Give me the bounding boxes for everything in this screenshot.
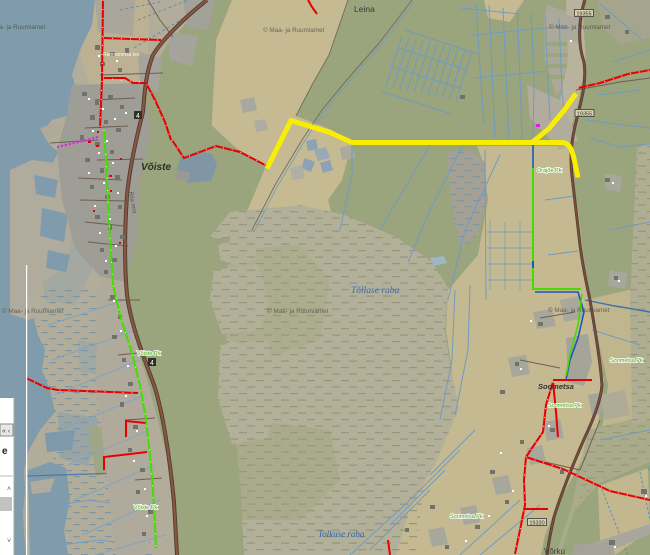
svg-text:19330: 19330 <box>529 521 544 527</box>
svg-text:© Maa- ja Ruumiamet: © Maa- ja Ruumiamet <box>2 307 64 315</box>
svg-text:Orajõe Pk: Orajõe Pk <box>537 168 562 174</box>
svg-text:Võiste Pk: Võiste Pk <box>137 351 160 357</box>
svg-text:© Maa- ja Ruumiamet: © Maa- ja Ruumiamet <box>263 26 325 34</box>
svg-text:© Maa- ja Ruumiamet: © Maa- ja Ruumiamet <box>267 307 329 315</box>
svg-text:Võiste Pk: Võiste Pk <box>134 505 157 511</box>
svg-text:Rannametsa tee: Rannametsa tee <box>103 52 140 58</box>
svg-text:19355: 19355 <box>577 112 592 118</box>
svg-text:Võrku: Võrku <box>544 547 565 555</box>
svg-text:˄: ˄ <box>7 486 11 493</box>
svg-text:Tolkuse raba: Tolkuse raba <box>318 529 365 539</box>
svg-text:© Maa- ja Ruumiamet: © Maa- ja Ruumiamet <box>549 23 611 31</box>
svg-text:© Maa- ja Ruumiamet: © Maa- ja Ruumiamet <box>0 23 46 31</box>
svg-text:© Maa- ja Ruumiamet: © Maa- ja Ruumiamet <box>548 306 610 314</box>
svg-text:4: 4 <box>136 113 140 120</box>
svg-text:Võiste: Võiste <box>141 162 171 173</box>
svg-text:4: 4 <box>150 360 154 367</box>
svg-text:« ‹: « ‹ <box>2 428 11 435</box>
svg-text:Soometsa Pk: Soometsa Pk <box>610 358 643 364</box>
svg-text:Tõllase raba: Tõllase raba <box>351 286 400 296</box>
svg-text:Soometsa: Soometsa <box>538 382 574 391</box>
svg-text:Soometsa Pk: Soometsa Pk <box>548 403 581 409</box>
svg-text:Soometsa Pk: Soometsa Pk <box>450 514 483 520</box>
svg-text:Leina: Leina <box>354 4 375 14</box>
svg-text:e: e <box>2 446 8 457</box>
svg-text:˅: ˅ <box>7 538 11 545</box>
svg-text:19355: 19355 <box>576 12 591 18</box>
